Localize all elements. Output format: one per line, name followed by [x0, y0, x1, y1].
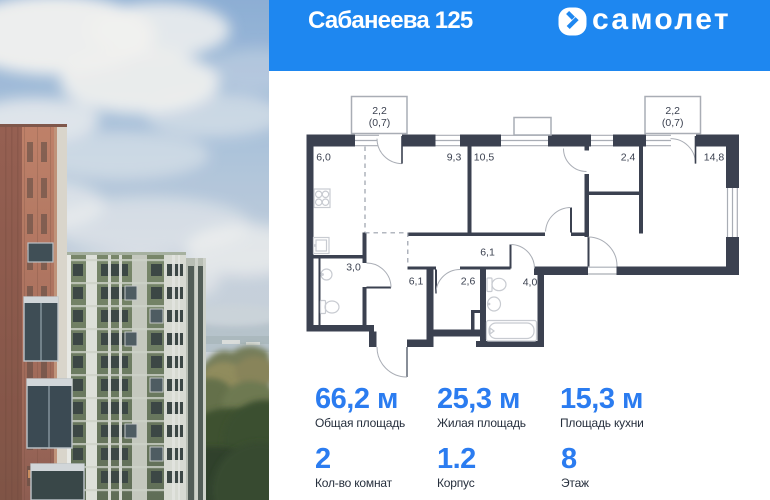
- svg-text:(0,7): (0,7): [662, 117, 684, 129]
- svg-text:3,0: 3,0: [346, 262, 361, 274]
- svg-text:6,1: 6,1: [409, 276, 424, 288]
- svg-text:4,0: 4,0: [523, 277, 538, 289]
- svg-text:6,1: 6,1: [480, 247, 495, 259]
- svg-text:6,0: 6,0: [316, 152, 331, 164]
- svg-text:2,2: 2,2: [665, 105, 680, 117]
- svg-text:9,3: 9,3: [447, 152, 462, 164]
- svg-text:14,8: 14,8: [704, 152, 725, 164]
- svg-text:10,5: 10,5: [474, 152, 495, 164]
- svg-text:2,6: 2,6: [461, 276, 476, 288]
- svg-text:(0,7): (0,7): [369, 117, 391, 129]
- svg-text:2,2: 2,2: [372, 105, 387, 117]
- svg-text:2,4: 2,4: [621, 152, 636, 164]
